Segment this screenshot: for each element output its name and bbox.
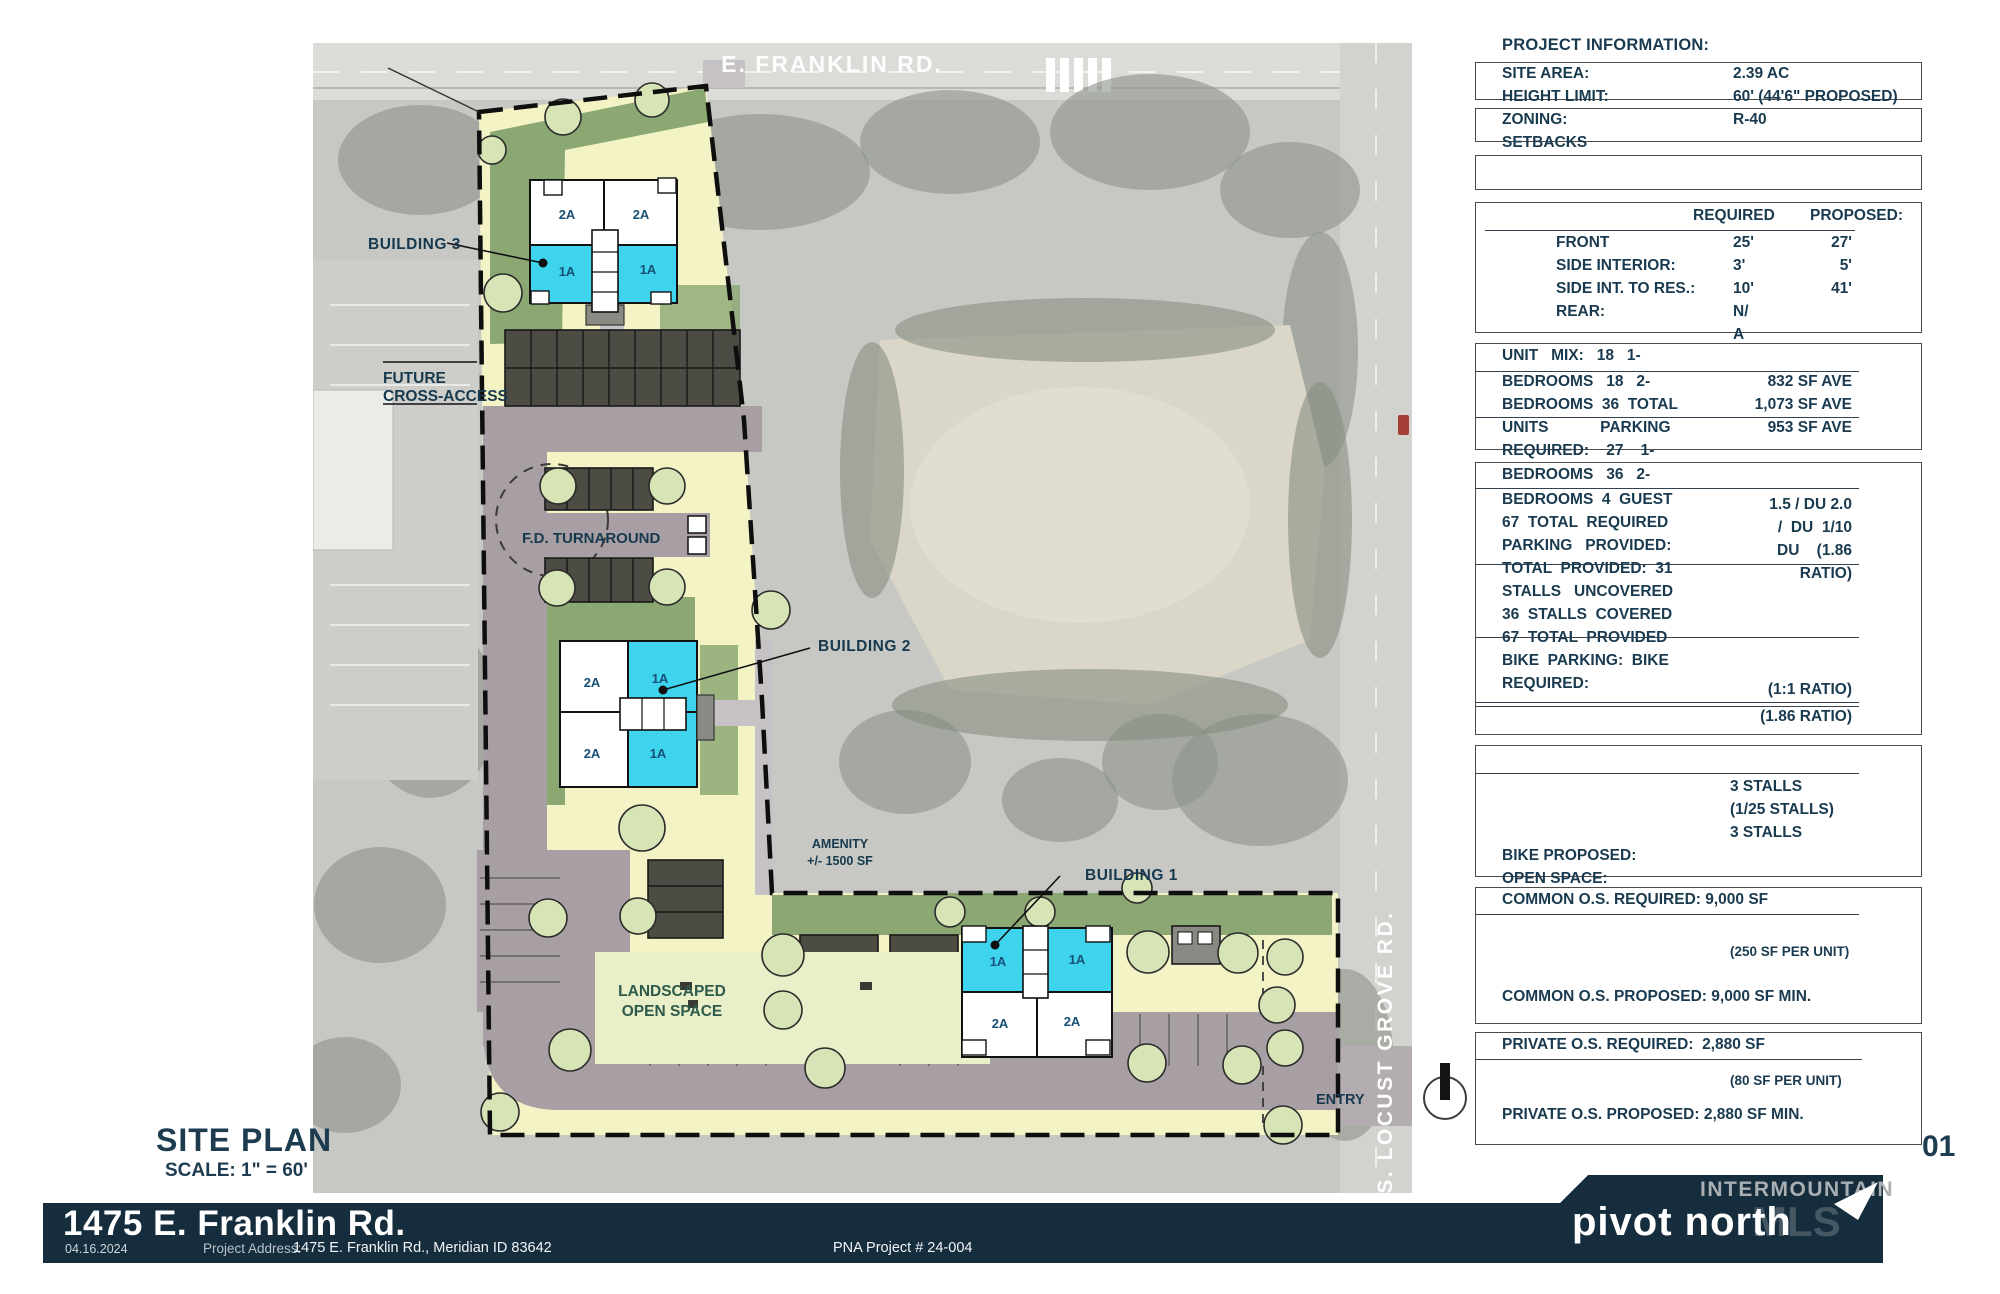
private-os-required: PRIVATE O.S. REQUIRED: 2,880 SF [1502, 1036, 1765, 1053]
setback-row-proposed: 5' [1840, 257, 1852, 274]
unit-label: 2A [584, 675, 601, 690]
parking-value: (1:1 RATIO) [1768, 681, 1852, 698]
label-building-3: BUILDING 3 [368, 236, 461, 253]
project-address: 1475 E. Franklin Rd., Meridian ID 83642 [293, 1240, 552, 1256]
label-landscaped-line1: LANDSCAPED [618, 983, 726, 1000]
setbacks-label: SETBACKS [1502, 134, 1587, 151]
label-entry: ENTRY [1316, 1092, 1365, 1108]
label-amenity-line2: +/- 1500 SF [807, 854, 873, 868]
label-amenity-line1: AMENITY [812, 837, 869, 851]
unit-label: 2A [584, 746, 601, 761]
unit-label: 2A [633, 207, 650, 222]
building-1 [962, 926, 1112, 1057]
unit-label: 1A [652, 671, 669, 686]
col-required: REQUIRED [1693, 207, 1775, 224]
unit-mix-value: 1,073 SF AVE [1755, 396, 1852, 413]
pivot-north-logo: pivot north [1572, 1200, 1852, 1245]
rule [1475, 1059, 1862, 1060]
unit-label: 1A [559, 264, 576, 279]
setback-row-proposed: 27' [1831, 234, 1852, 251]
road-label-locust-grove: S. LOCUST GROVE RD. [1374, 910, 1397, 1193]
parking-value: 1.5 / DU 2.0 [1769, 496, 1852, 513]
parking-line: REQUIRED: [1502, 675, 1589, 692]
label-future-line2: CROSS-ACCESS [383, 388, 508, 405]
sheet-number: 01 [1922, 1130, 1955, 1164]
unit-mix-line: BEDROOMS 18 2- [1502, 373, 1650, 390]
parking-line: 36 STALLS COVERED [1502, 606, 1672, 623]
unit-label: 2A [559, 207, 576, 222]
rule [1475, 702, 1859, 703]
car-on-road [1398, 415, 1409, 435]
common-os-proposed: COMMON O.S. PROPOSED: 9,000 SF MIN. [1502, 988, 1811, 1005]
setback-row-required: N/ [1733, 303, 1749, 320]
project-information-panel: PROJECT INFORMATION: SITE AREA: 2.39 AC … [1475, 30, 1924, 1160]
bike-value: 3 STALLS [1730, 824, 1802, 841]
setback-row-label: REAR: [1556, 303, 1605, 320]
col-proposed: PROPOSED: [1810, 207, 1903, 224]
unit-label: 1A [640, 262, 657, 277]
setback-row-proposed: 41' [1831, 280, 1852, 297]
unit-mix-line: REQUIRED: 27 1- [1502, 442, 1654, 459]
rule [1485, 230, 1855, 231]
bike-proposed-label: BIKE PROPOSED: [1502, 847, 1636, 864]
project-number: PNA Project # 24-004 [833, 1240, 972, 1256]
sheet-scale: SCALE: 1" = 60' [165, 1160, 308, 1182]
unit-label: 2A [992, 1016, 1009, 1031]
building-3 [530, 178, 677, 325]
parking-value: / DU 1/10 [1778, 519, 1852, 536]
label-building-2: BUILDING 2 [818, 638, 911, 655]
info-box-empty [1475, 155, 1922, 190]
unit-label: 1A [990, 954, 1007, 969]
setback-row-label: SIDE INTERIOR: [1556, 257, 1676, 274]
bike-value: (1/25 STALLS) [1730, 801, 1834, 818]
logo-arrow-icon [1820, 1172, 1890, 1224]
bike-value: 3 STALLS [1730, 778, 1802, 795]
label-future-line1: FUTURE [383, 370, 446, 387]
parking-value: DU (1.86 [1777, 542, 1852, 559]
common-os-per-unit: (250 SF PER UNIT) [1730, 943, 1849, 960]
rule [1475, 706, 1859, 707]
open-space-label: OPEN SPACE: [1502, 870, 1608, 887]
parking-value: (1.86 RATIO) [1760, 708, 1852, 725]
rule [1475, 773, 1859, 774]
unit-label: 1A [1069, 952, 1086, 967]
parking-line: STALLS UNCOVERED [1502, 583, 1673, 600]
unit-label: 2A [1064, 1014, 1081, 1029]
label-landscaped-line2: OPEN SPACE [622, 1003, 723, 1020]
height-limit-value: 60' (44'6" PROPOSED) [1733, 88, 1898, 105]
label-building-1: BUILDING 1 [1085, 867, 1178, 884]
unit-mix-line: UNITS PARKING [1502, 419, 1671, 436]
parking-line: PARKING PROVIDED: [1502, 537, 1671, 554]
site-plan-sheet: 2A 2A 1A 1A 2A 2A 1A 1A 1A 1A 2A 2A E. F… [0, 0, 2000, 1294]
rule [1475, 637, 1859, 638]
road-label-franklin: E. FRANKLIN RD. [721, 51, 943, 77]
setback-row-required: 25' [1733, 234, 1754, 251]
parking-line: TOTAL PROVIDED: 31 [1502, 560, 1673, 577]
building-2 [560, 641, 714, 787]
rule [1475, 371, 1859, 372]
setback-row-label: FRONT [1556, 234, 1609, 251]
parking-value: RATIO) [1800, 565, 1852, 582]
rule [1475, 488, 1859, 489]
north-arrow-icon [1424, 1063, 1466, 1119]
unit-mix-line: BEDROOMS 36 TOTAL [1502, 396, 1678, 413]
private-os-per-unit: (80 SF PER UNIT) [1730, 1072, 1842, 1089]
setback-row-required: 10' [1733, 280, 1754, 297]
project-address-label: Project Address: [203, 1241, 301, 1256]
height-limit-label: HEIGHT LIMIT: [1502, 88, 1609, 105]
panel-heading: PROJECT INFORMATION: [1502, 36, 1709, 55]
private-os-proposed: PRIVATE O.S. PROPOSED: 2,880 SF MIN. [1502, 1106, 1804, 1123]
unit-mix-value: 953 SF AVE [1768, 419, 1852, 436]
parking-line: BEDROOMS 36 2- [1502, 466, 1650, 483]
parking-line: BIKE PARKING: BIKE [1502, 652, 1669, 669]
site-area-label: SITE AREA: [1502, 65, 1589, 82]
parking-line: 67 TOTAL REQUIRED [1502, 514, 1668, 531]
unit-mix-line: UNIT MIX: 18 1- [1502, 347, 1641, 364]
common-os-required: COMMON O.S. REQUIRED: 9,000 SF [1502, 891, 1768, 908]
zoning-label: ZONING: [1502, 111, 1567, 128]
setback-row-required: 3' [1733, 257, 1745, 274]
unit-label: 1A [650, 746, 667, 761]
sheet-title: SITE PLAN [156, 1122, 332, 1159]
sheet-date: 04.16.2024 [65, 1242, 128, 1256]
setback-row-required: A [1733, 326, 1744, 343]
rule [1475, 417, 1859, 418]
setback-row-label: SIDE INT. TO RES.: [1556, 280, 1695, 297]
site-area-value: 2.39 AC [1733, 65, 1789, 82]
rule [1475, 914, 1859, 915]
label-fd-turnaround: F.D. TURNAROUND [522, 530, 660, 547]
unit-mix-value: 832 SF AVE [1768, 373, 1852, 390]
parking-line: BEDROOMS 4 GUEST [1502, 491, 1673, 508]
zoning-value: R-40 [1733, 111, 1767, 128]
project-title: 1475 E. Franklin Rd. [63, 1204, 406, 1244]
